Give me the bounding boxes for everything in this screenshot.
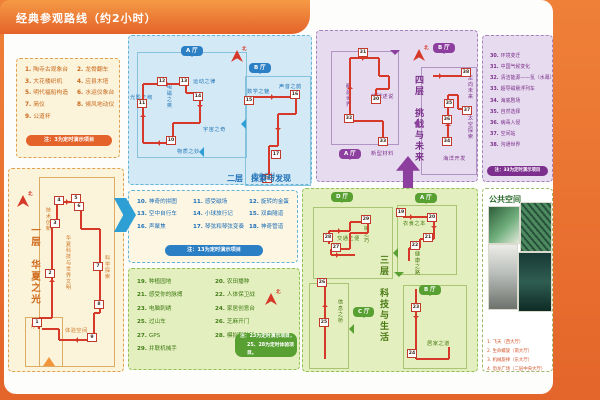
floor3-map-title: 三层 科技与生活 bbox=[377, 255, 390, 343]
exhibit-number: 22. bbox=[215, 292, 225, 298]
exhibit-name: 并联机械手 bbox=[149, 346, 177, 352]
exhibit-name: 环境变迁 bbox=[501, 54, 521, 60]
exhibit-name: 感受你的脉搏 bbox=[149, 292, 183, 298]
route-stop-marker: 30 bbox=[371, 95, 381, 104]
mural-photo bbox=[518, 252, 552, 312]
exhibit-number: 29. bbox=[137, 346, 147, 352]
route-stop-marker: 25 bbox=[319, 318, 329, 327]
hall-badge-b: B 厅 bbox=[433, 43, 455, 53]
north-compass-icon: 北 bbox=[17, 193, 31, 207]
museum-route-poster: { "page": { "title": "经典参观路线（约2小时）", "no… bbox=[0, 0, 600, 400]
route-stop-marker: 13 bbox=[179, 77, 189, 86]
route-direction-arrow-icon bbox=[72, 337, 78, 343]
route-segment bbox=[378, 58, 380, 76]
exhibit-item: 3.大花楼织机 bbox=[25, 79, 77, 86]
route-direction-arrow-icon bbox=[439, 73, 445, 79]
exhibit-item: 37.空间站 bbox=[490, 132, 552, 138]
route-stop-marker: 27 bbox=[331, 243, 341, 252]
exhibit-item: 11.感受磁场 bbox=[193, 199, 249, 205]
route-stop-marker: 6 bbox=[74, 202, 84, 211]
route-segment bbox=[416, 358, 449, 360]
route-direction-arrow-icon bbox=[336, 252, 342, 258]
exhibit-number: 9. bbox=[25, 114, 31, 121]
exhibit-item: 27.GPS bbox=[137, 333, 215, 339]
flow-arrow-icon bbox=[236, 119, 246, 129]
exhibit-number: 26. bbox=[215, 319, 225, 325]
exhibit-number: 11. bbox=[193, 199, 203, 205]
north-compass-icon: 北 bbox=[413, 47, 427, 61]
exhibit-name: 候风地动仪 bbox=[85, 102, 114, 109]
exhibit-number: 12. bbox=[249, 199, 259, 205]
route-stop-marker: 7 bbox=[93, 262, 103, 271]
exhibit-number: 34. bbox=[490, 99, 499, 105]
zone-label: 太空探索 bbox=[467, 115, 474, 140]
route-direction-arrow-icon bbox=[154, 140, 160, 146]
exhibit-number: 1. bbox=[25, 67, 31, 74]
route-direction-arrow-icon bbox=[431, 226, 437, 232]
photo-caption: 1. 飞天（西大厅） bbox=[487, 339, 523, 345]
exhibit-number: 38. bbox=[490, 143, 499, 149]
route-segment bbox=[350, 120, 383, 122]
exhibit-number: 4. bbox=[77, 79, 83, 86]
route-stop-marker: 10 bbox=[166, 136, 176, 145]
route-direction-arrow-icon bbox=[271, 94, 277, 100]
photo-caption: 2. 生命螺旋（南大厅） bbox=[487, 348, 532, 354]
exhibit-name: 超导磁悬浮列车 bbox=[501, 87, 535, 93]
exhibit-name: 家居创意台 bbox=[227, 306, 255, 312]
exhibit-name: 种植园地 bbox=[149, 279, 171, 285]
exhibit-name: 病毒入侵 bbox=[501, 121, 521, 127]
route-stop-marker: 26 bbox=[317, 278, 327, 287]
zone-label: 走向未来 bbox=[467, 75, 474, 100]
exhibit-number: 37. bbox=[490, 132, 499, 138]
exhibit-name: 清洁能源——氢（水幕） bbox=[501, 76, 555, 82]
exhibit-number: 30. bbox=[490, 54, 499, 60]
hall-badge-d: D 厅 bbox=[331, 192, 353, 202]
exhibit-name: 农田播种 bbox=[227, 279, 249, 285]
floor1-exhibit-list-box: 1.陶寺古观象台2.龙骨翻车3.大花楼织机4.应县木塔5.明代福船构造6.水运仪… bbox=[16, 58, 120, 158]
exhibit-number: 6. bbox=[77, 90, 83, 97]
zone-label: 健康之路 bbox=[414, 251, 421, 276]
hall-badge-a: A 厅 bbox=[415, 193, 437, 203]
zone-label: 科学探索 bbox=[104, 255, 111, 280]
floor3-note-line2: 25、28为定时体验项目。 bbox=[235, 342, 297, 359]
floor1-exhibit-list: 1.陶寺古观象台2.龙骨翻车3.大花楼织机4.应县木塔5.明代福船构造6.水运仪… bbox=[25, 67, 121, 120]
route-stop-marker: 1 bbox=[32, 318, 42, 327]
route-direction-arrow-icon bbox=[413, 316, 419, 322]
route-stop-marker: 22 bbox=[410, 241, 420, 250]
zone-label: 声音之韵 bbox=[279, 83, 302, 90]
exhibit-item: 12.旋转的金蛋 bbox=[249, 199, 299, 205]
exhibit-number: 32. bbox=[490, 76, 499, 82]
hall-badge-c: C 厅 bbox=[353, 307, 374, 317]
public-space-box: 公共空间 1. 飞天（西大厅）2. 生命螺旋（南大厅）3. 机械旋律（东大厅）4… bbox=[482, 188, 553, 372]
route-stop-marker: 35 bbox=[444, 99, 454, 108]
route-segment bbox=[350, 232, 368, 234]
exhibit-item: 10.神奇的拼图 bbox=[137, 199, 193, 205]
north-label: 北 bbox=[242, 46, 247, 52]
exhibit-item: 7.简仪 bbox=[25, 102, 77, 109]
exhibit-number: 16. bbox=[137, 224, 147, 230]
exhibit-item: 4.应县木塔 bbox=[77, 79, 121, 86]
zone-label: 电磁之奥 bbox=[166, 84, 173, 109]
exhibit-item: 32.清洁能源——氢（水幕） bbox=[490, 76, 552, 82]
floor2-demo-note-badge: 注：13为定时演示项目 bbox=[165, 245, 263, 256]
building-outline bbox=[309, 283, 349, 369]
exhibit-item: 36.病毒入侵 bbox=[490, 121, 552, 127]
exhibit-number: 33. bbox=[490, 87, 499, 93]
exhibit-name: 琴弦和琴弦变奏 bbox=[205, 224, 244, 230]
route-stop-marker: 12 bbox=[157, 77, 167, 86]
exhibit-item: 1.陶寺古观象台 bbox=[25, 67, 77, 74]
route-segment bbox=[349, 233, 351, 249]
zone-label: 海洋开发 bbox=[443, 155, 466, 162]
exhibit-name: 龙骨翻车 bbox=[85, 67, 108, 74]
route-stop-marker: 29 bbox=[361, 215, 371, 224]
hall-badge-b: B 厅 bbox=[419, 285, 441, 295]
route-segment bbox=[349, 222, 351, 231]
exhibit-name: 感受磁场 bbox=[205, 199, 227, 205]
exhibit-number: 5. bbox=[25, 90, 31, 97]
zone-label: 信息之桥 bbox=[337, 299, 344, 324]
exhibit-name: 双曲隧道 bbox=[261, 211, 283, 217]
exhibit-number: 20. bbox=[215, 279, 225, 285]
exhibit-name: 水运仪象台 bbox=[85, 90, 114, 97]
route-stop-marker: 9 bbox=[87, 333, 97, 342]
exhibit-item: 26.芝麻开门 bbox=[215, 319, 301, 325]
north-compass-icon: 北 bbox=[265, 291, 279, 305]
title-band: 经典参观路线（约2小时） bbox=[0, 0, 310, 34]
route-stop-marker: 17 bbox=[271, 150, 281, 159]
exhibit-name: 神奇的拼图 bbox=[149, 199, 177, 205]
north-label: 北 bbox=[424, 45, 429, 51]
north-label: 北 bbox=[276, 289, 281, 295]
flow-arrow-icon bbox=[390, 50, 400, 60]
flow-arrow-icon bbox=[388, 248, 398, 258]
route-direction-arrow-icon bbox=[338, 228, 344, 234]
route-direction-arrow-icon bbox=[197, 105, 203, 111]
exhibit-item: 8.候风地动仪 bbox=[77, 102, 121, 109]
exhibit-number: 19. bbox=[137, 279, 147, 285]
exhibit-number: 18. bbox=[249, 224, 259, 230]
floor4-demo-note-badge: 注：33为定时演示项目 bbox=[487, 166, 548, 176]
exhibit-number: 21. bbox=[137, 292, 147, 298]
exhibit-item: 38.沟通世界 bbox=[490, 143, 552, 149]
floor1-map-title: 一层 华夏之光 bbox=[27, 225, 41, 306]
exhibit-number: 23. bbox=[137, 306, 147, 312]
exhibit-item: 2.龙骨翻车 bbox=[77, 67, 121, 74]
exhibit-item: 23.电脑刺绣 bbox=[137, 306, 215, 312]
floor2-exhibit-list: 10.神奇的拼图11.感受磁场12.旋转的金蛋13.空中自行车14.小球旅行记1… bbox=[137, 199, 299, 230]
exhibit-item: 14.小球旅行记 bbox=[193, 211, 249, 217]
route-segment bbox=[448, 347, 450, 359]
exhibit-item: 16.声聚焦 bbox=[137, 224, 193, 230]
route-stop-marker: 14 bbox=[193, 92, 203, 101]
zone-label: 体验空间 bbox=[65, 327, 88, 334]
flow-arrow-icon bbox=[409, 118, 419, 128]
exhibit-name: 自然选择 bbox=[501, 110, 521, 116]
route-segment bbox=[433, 75, 464, 77]
route-segment bbox=[295, 97, 297, 114]
route-stop-marker: 16 bbox=[290, 90, 300, 99]
floor4-map: A 厅 B 厅 北 四层 挑战与未来 能源世界地球述说新型材料走向未来太空探索海… bbox=[316, 30, 478, 182]
exhibit-name: 过山车 bbox=[149, 319, 166, 325]
green-ceiling-photo bbox=[488, 206, 520, 244]
exhibit-number: 8. bbox=[77, 102, 83, 109]
route-segment bbox=[269, 145, 278, 147]
floor2-map-title: 二层 探索与发现 bbox=[227, 173, 291, 184]
exhibit-item: 9.公道杯 bbox=[25, 114, 77, 121]
zone-label: 居家之道 bbox=[427, 340, 450, 347]
entrance-arrow-icon bbox=[43, 351, 55, 366]
route-stop-marker: 4 bbox=[54, 196, 64, 205]
public-space-captions: 1. 飞天（西大厅）2. 生命螺旋（南大厅）3. 机械旋律（东大厅）4. 恐龙广… bbox=[487, 339, 551, 372]
zone-label: 华夏科技与世界文明 bbox=[65, 235, 72, 291]
floor1-demo-note-badge: 注：3为定时演示项目 bbox=[26, 135, 112, 146]
exhibit-name: 中国气候变化 bbox=[501, 65, 530, 71]
exhibit-number: 24. bbox=[215, 306, 225, 312]
dinosaur-skeleton-photo bbox=[488, 244, 518, 310]
dna-spiral-photo bbox=[520, 202, 552, 252]
exhibit-name: 神奇管道 bbox=[261, 224, 283, 230]
route-segment bbox=[58, 329, 60, 340]
hall-badge-a: A 厅 bbox=[181, 46, 203, 56]
exhibit-name: 公道杯 bbox=[33, 114, 50, 121]
exhibit-item: 17.琴弦和琴弦变奏 bbox=[193, 224, 249, 230]
exhibit-name: GPS bbox=[149, 333, 160, 339]
route-stop-marker: 34 bbox=[442, 137, 452, 146]
route-stop-marker: 28 bbox=[323, 233, 333, 242]
route-direction-arrow-icon bbox=[410, 214, 416, 220]
flow-arrow-icon bbox=[194, 147, 204, 157]
exhibit-item: 13.空中自行车 bbox=[137, 211, 193, 217]
exhibit-number: 27. bbox=[137, 333, 147, 339]
floor4-exhibit-list: 30.环境变迁31.中国气候变化32.清洁能源——氢（水幕）33.超导磁悬浮列车… bbox=[490, 54, 552, 149]
exhibit-name: 旋转的金蛋 bbox=[261, 199, 289, 205]
route-stop-marker: 19 bbox=[396, 208, 406, 217]
route-stop-marker: 24 bbox=[407, 349, 417, 358]
exhibit-name: 小球旅行记 bbox=[205, 211, 233, 217]
route-segment bbox=[331, 254, 355, 256]
route-stop-marker: 3 bbox=[50, 219, 60, 228]
exhibit-item: 15.双曲隧道 bbox=[249, 211, 299, 217]
exhibit-name: 简仪 bbox=[33, 102, 45, 109]
hall-badge-a: A 厅 bbox=[339, 149, 361, 159]
public-space-title: 公共空间 bbox=[489, 194, 521, 205]
route-segment bbox=[457, 95, 459, 109]
route-direction-arrow-icon bbox=[347, 83, 353, 89]
route-segment bbox=[81, 228, 100, 230]
route-stop-marker: 8 bbox=[94, 300, 104, 309]
zone-label: 衣食之本 bbox=[403, 220, 426, 227]
hall-badge-b: B 厅 bbox=[249, 63, 271, 73]
route-stop-marker: 15 bbox=[244, 96, 254, 105]
route-stop-marker: 2 bbox=[45, 269, 55, 278]
exhibit-item: 25.过山车 bbox=[137, 319, 215, 325]
exhibit-number: 31. bbox=[490, 65, 499, 71]
exhibit-number: 17. bbox=[193, 224, 203, 230]
exhibit-item: 20.农田播种 bbox=[215, 279, 301, 285]
floor2-map: A 厅 北 B 厅 二层 探索与发现 光影之绚电磁之奥运动之律宇宙之奇物质之妙数… bbox=[128, 35, 312, 185]
exhibit-number: 3. bbox=[25, 79, 31, 86]
floor3-map: D 厅 A 厅 B 厅 C 厅 三层 科技与生活 交通之便机械之巧衣食之本健康之… bbox=[302, 188, 478, 372]
floor1-map: 北 一层 华夏之光 技术创新华夏科技与世界文明科学探索序厅体验空间1234567… bbox=[8, 168, 124, 372]
exhibit-name: 沟通世界 bbox=[501, 143, 521, 149]
exhibit-item: 6.水运仪象台 bbox=[77, 90, 121, 97]
exhibit-name: 空中自行车 bbox=[149, 211, 177, 217]
exhibit-item: 30.环境变迁 bbox=[490, 54, 552, 60]
floor3-demo-note-badge: 注：23为定时演示项目， 25、28为定时体验项目。 bbox=[235, 333, 297, 357]
exhibit-number: 14. bbox=[193, 211, 203, 217]
north-label: 北 bbox=[28, 191, 33, 197]
route-stop-marker: 31 bbox=[358, 48, 368, 57]
zone-label: 数学之魅 bbox=[247, 88, 270, 95]
route-direction-arrow-icon bbox=[140, 111, 146, 117]
route-stop-marker: 21 bbox=[423, 233, 433, 242]
photo-caption: 4. 恐龙广场（二层中央大厅） bbox=[487, 366, 545, 372]
route-segment bbox=[278, 113, 296, 115]
exhibit-number: 10. bbox=[137, 199, 147, 205]
exhibit-item: 24.家居创意台 bbox=[215, 306, 301, 312]
exhibit-name: 陶寺古观象台 bbox=[33, 67, 68, 74]
exhibit-item: 31.中国气候变化 bbox=[490, 65, 552, 71]
route-stop-marker: 36 bbox=[442, 115, 452, 124]
route-stop-marker: 23 bbox=[411, 303, 421, 312]
exhibit-number: 15. bbox=[249, 211, 259, 217]
route-segment bbox=[42, 328, 59, 330]
exhibit-item: 18.神奇管道 bbox=[249, 224, 299, 230]
floor2-exhibit-list-box: 10.神奇的拼图11.感受磁场12.旋转的金蛋13.空中自行车14.小球旅行记1… bbox=[128, 190, 298, 263]
exhibit-number: 35. bbox=[490, 110, 499, 116]
route-stop-marker: 32 bbox=[344, 114, 354, 123]
zone-label: 新型材料 bbox=[371, 150, 394, 157]
exhibit-item: 33.超导磁悬浮列车 bbox=[490, 87, 552, 93]
flow-arrow-icon bbox=[344, 324, 354, 334]
floor3-note-line1: 注：23为定时演示项目， bbox=[235, 333, 297, 342]
north-compass-icon: 北 bbox=[231, 48, 245, 62]
exhibit-number: 28. bbox=[215, 333, 225, 339]
route-segment bbox=[388, 76, 390, 89]
route-stop-marker: 33 bbox=[378, 137, 388, 146]
exhibit-name: 海底剧场 bbox=[501, 99, 521, 105]
exhibit-name: 应县木塔 bbox=[85, 79, 108, 86]
exhibit-number: 36. bbox=[490, 121, 499, 127]
exhibit-item: 21.感受你的脉搏 bbox=[137, 292, 215, 298]
exhibit-number: 2. bbox=[77, 67, 83, 74]
exhibit-number: 25. bbox=[137, 319, 147, 325]
exhibit-item: 19.种植园地 bbox=[137, 279, 215, 285]
route-direction-arrow-icon bbox=[322, 301, 328, 307]
exhibit-name: 大花楼织机 bbox=[33, 79, 62, 86]
exhibit-item: 22.人体保卫战 bbox=[215, 292, 301, 298]
zone-label: 宇宙之奇 bbox=[203, 126, 226, 133]
floor4-exhibit-list-box: 30.环境变迁31.中国气候变化32.清洁能源——氢（水幕）33.超导磁悬浮列车… bbox=[482, 35, 553, 182]
route-segment bbox=[173, 122, 200, 124]
exhibit-number: 7. bbox=[25, 102, 31, 109]
exhibit-item: 35.自然选择 bbox=[490, 110, 552, 116]
route-segment bbox=[94, 312, 100, 314]
exhibit-number: 13. bbox=[137, 211, 147, 217]
route-stop-marker: 37 bbox=[462, 106, 472, 115]
exhibit-item: 29.并联机械手 bbox=[137, 346, 215, 352]
route-stop-marker: 11 bbox=[137, 99, 147, 108]
exhibit-name: 电脑刺绣 bbox=[149, 306, 171, 312]
exhibit-item: 34.海底剧场 bbox=[490, 99, 552, 105]
exhibit-item: 5.明代福船构造 bbox=[25, 90, 77, 97]
exhibit-name: 人体保卫战 bbox=[227, 292, 255, 298]
exhibit-name: 空间站 bbox=[501, 132, 516, 138]
photo-caption: 3. 机械旋律（东大厅） bbox=[487, 357, 532, 363]
route-stop-marker: 38 bbox=[461, 68, 471, 77]
flow-arrow-icon bbox=[394, 272, 404, 282]
exhibit-name: 声聚焦 bbox=[149, 224, 166, 230]
route-segment bbox=[376, 88, 389, 90]
page-title: 经典参观路线（约2小时） bbox=[16, 10, 157, 26]
floor3-exhibit-list-box: 19.种植园地20.农田播种21.感受你的脉搏22.人体保卫战23.电脑刺绣24… bbox=[128, 268, 300, 370]
exhibit-name: 芝麻开门 bbox=[227, 319, 249, 325]
route-direction-arrow-icon bbox=[275, 128, 281, 134]
route-stop-marker: 20 bbox=[427, 213, 437, 222]
zone-label: 运动之律 bbox=[193, 78, 216, 85]
exhibit-name: 明代福船构造 bbox=[33, 90, 68, 97]
